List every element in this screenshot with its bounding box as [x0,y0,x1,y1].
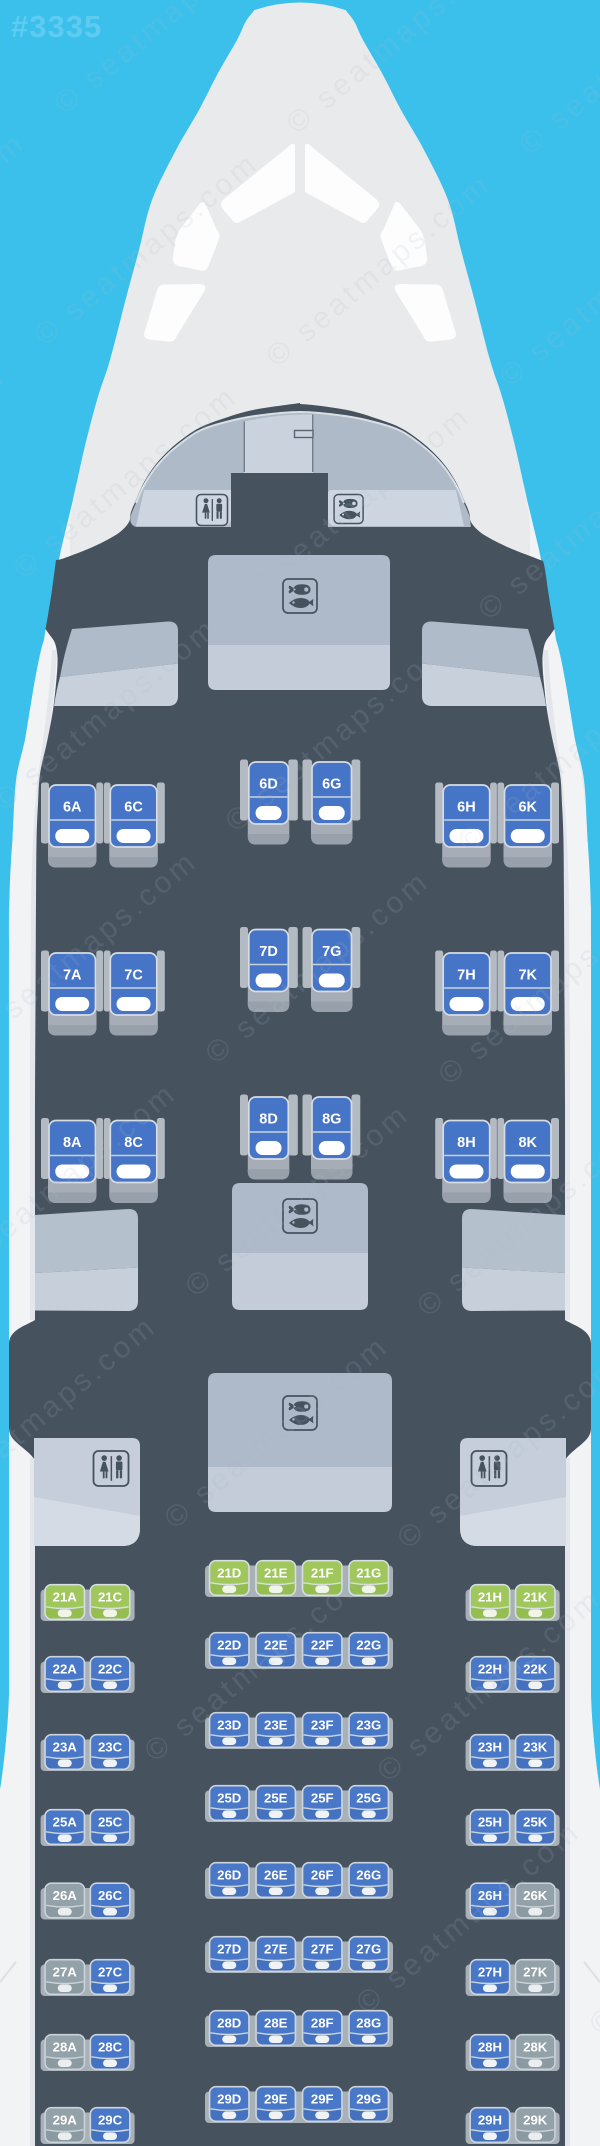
svg-text:21F: 21F [311,1566,334,1581]
svg-text:27G: 27G [356,1942,381,1957]
svg-text:25E: 25E [264,1791,288,1806]
svg-text:27C: 27C [98,1965,123,1980]
svg-text:8G: 8G [322,1112,341,1128]
svg-text:29F: 29F [311,2092,334,2107]
svg-text:23F: 23F [311,1718,334,1733]
svg-text:22C: 22C [98,1662,123,1677]
svg-text:25K: 25K [523,1815,548,1830]
svg-text:28H: 28H [478,2040,502,2055]
svg-text:22G: 22G [356,1638,381,1653]
svg-text:#3335: #3335 [11,9,102,44]
svg-text:7C: 7C [124,968,143,984]
svg-text:21D: 21D [217,1566,241,1581]
svg-text:21E: 21E [264,1566,288,1581]
svg-text:28K: 28K [523,2040,548,2055]
svg-text:21C: 21C [98,1590,123,1605]
svg-text:28F: 28F [311,2016,334,2031]
svg-text:23G: 23G [356,1718,381,1733]
svg-text:23D: 23D [217,1718,241,1733]
svg-text:21K: 21K [523,1590,548,1605]
svg-text:22F: 22F [311,1638,334,1653]
svg-text:27H: 27H [478,1965,502,1980]
svg-text:21A: 21A [53,1590,78,1605]
svg-text:25H: 25H [478,1815,502,1830]
svg-text:6H: 6H [457,800,476,816]
svg-text:22D: 22D [217,1638,241,1653]
svg-text:8H: 8H [457,1135,476,1151]
svg-text:27K: 27K [523,1965,548,1980]
svg-text:29K: 29K [523,2113,548,2128]
svg-text:23C: 23C [98,1740,123,1755]
svg-text:6G: 6G [322,777,341,793]
svg-text:27D: 27D [217,1942,241,1957]
svg-text:26D: 26D [217,1868,241,1883]
svg-text:21H: 21H [478,1590,502,1605]
svg-text:23E: 23E [264,1718,288,1733]
svg-text:6C: 6C [124,800,143,816]
svg-text:26G: 26G [356,1868,381,1883]
svg-text:23K: 23K [523,1740,548,1755]
svg-text:23A: 23A [53,1740,78,1755]
svg-text:22A: 22A [53,1662,78,1677]
svg-text:6A: 6A [63,800,82,816]
svg-text:26A: 26A [53,1888,78,1903]
svg-text:26F: 26F [311,1868,334,1883]
svg-text:7H: 7H [457,968,476,984]
svg-text:26K: 26K [523,1888,548,1903]
svg-text:25F: 25F [311,1791,334,1806]
svg-text:29H: 29H [478,2113,502,2128]
svg-text:29D: 29D [217,2092,241,2107]
svg-text:8D: 8D [259,1112,278,1128]
svg-text:29C: 29C [98,2113,123,2128]
svg-text:27F: 27F [311,1942,334,1957]
svg-text:28C: 28C [98,2040,123,2055]
svg-text:26E: 26E [264,1868,288,1883]
svg-text:27A: 27A [53,1965,78,1980]
svg-text:29E: 29E [264,2092,288,2107]
svg-text:7D: 7D [259,944,278,960]
svg-text:28D: 28D [217,2016,241,2031]
svg-text:29G: 29G [356,2092,381,2107]
svg-text:8K: 8K [518,1135,537,1151]
svg-text:25A: 25A [53,1815,78,1830]
svg-text:28A: 28A [53,2040,78,2055]
svg-text:25C: 25C [98,1815,123,1830]
svg-text:26C: 26C [98,1888,123,1903]
svg-text:23H: 23H [478,1740,502,1755]
svg-text:25D: 25D [217,1791,241,1806]
svg-text:27E: 27E [264,1942,288,1957]
svg-text:29A: 29A [53,2113,78,2128]
svg-text:28E: 28E [264,2016,288,2031]
svg-text:25G: 25G [356,1791,381,1806]
